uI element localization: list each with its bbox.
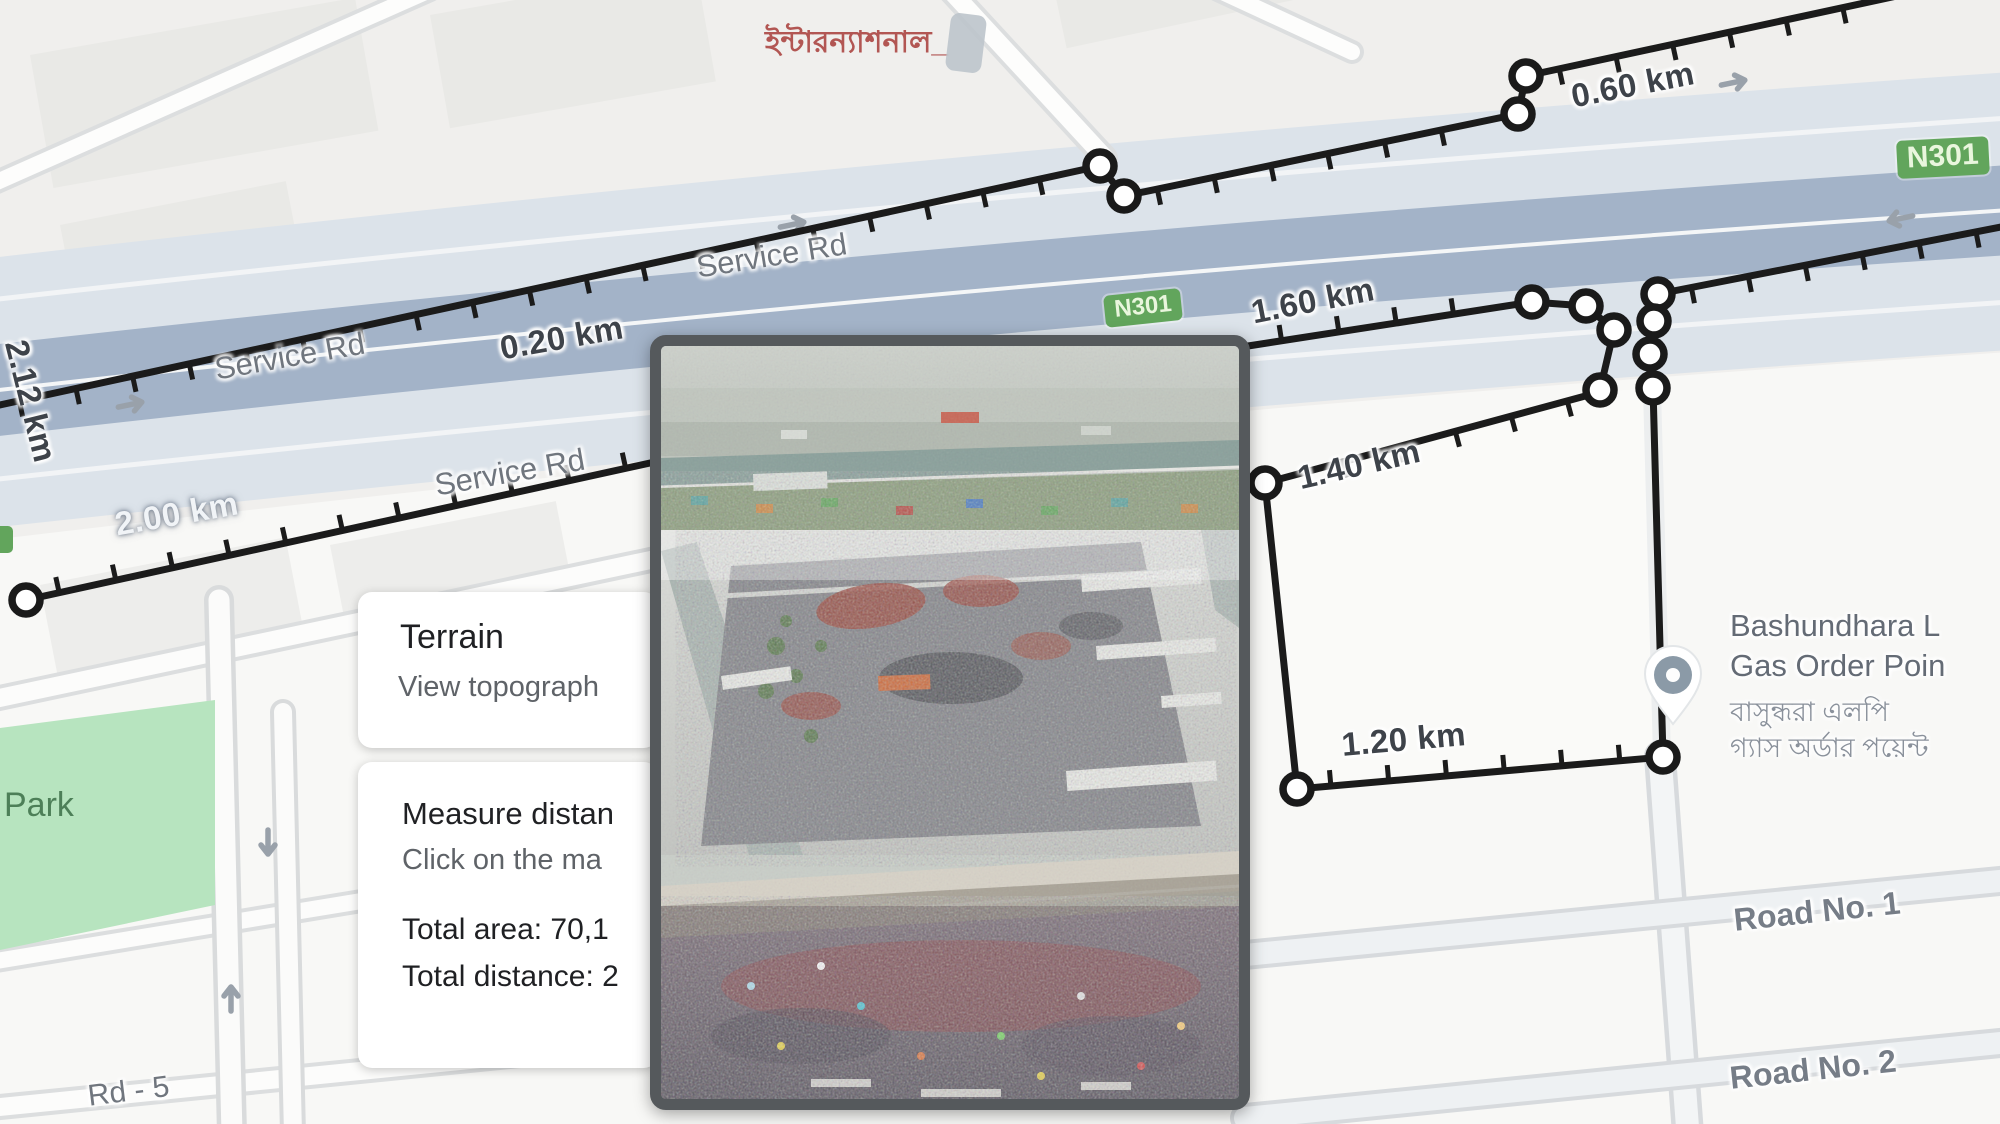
measure-tick (1384, 142, 1387, 158)
measure-tick (1271, 165, 1274, 181)
map-screen: ইন্টারন্যাশনাল_ Service Rd Service Rd Se… (0, 0, 2000, 1124)
poi-name-bn-line2: গ্যাস অর্ডার পয়েন্ট (1730, 730, 2000, 766)
measure-tick (1329, 770, 1330, 786)
measure-tick (1786, 20, 1789, 36)
poi-name-line2: Gas Order Poin (1730, 646, 2000, 686)
measure-tick (169, 552, 172, 568)
measure-tick (1748, 276, 1751, 292)
measure-tick (396, 502, 399, 518)
measure-card-total-distance: Total distance: 2 (402, 960, 658, 994)
measure-card-total-area: Total area: 70,1 (402, 913, 658, 947)
measure-node[interactable] (1649, 743, 1677, 771)
measure-tick (622, 453, 625, 469)
overlay-photo-crowd-collage (650, 335, 1250, 1110)
measure-tick (189, 364, 192, 380)
measure-tick (473, 302, 476, 318)
park-label: Park (4, 786, 74, 825)
terrain-subtitle: View topograph (398, 671, 658, 704)
measure-tick (1387, 765, 1388, 781)
building-blob (945, 12, 988, 74)
measure-tick (529, 290, 532, 306)
measure-node[interactable] (1639, 374, 1667, 402)
measure-node[interactable] (1586, 376, 1614, 404)
terrain-title: Terrain (400, 618, 658, 657)
photo-content (661, 346, 1239, 1099)
measure-card-title: Measure distan (402, 796, 658, 832)
measure-tick (226, 540, 229, 556)
measure-node[interactable] (1518, 288, 1546, 316)
poi-name-bn-line1: বাসুন্ধরা এলপি (1730, 694, 2000, 730)
measure-tick (112, 565, 115, 581)
measure-tick (1729, 32, 1732, 48)
measure-tick (926, 204, 929, 220)
measure-tick (1279, 325, 1281, 341)
measure-tick (1862, 254, 1865, 270)
measure-tick (1559, 69, 1562, 85)
measure-tick (1441, 130, 1444, 146)
measure-tick (1976, 232, 1979, 248)
measure-tick (1039, 179, 1042, 195)
map-label-international-bn: ইন্টারন্যাশনাল_ (765, 18, 948, 69)
measure-node[interactable] (1504, 100, 1532, 128)
measure-tick (1445, 760, 1446, 776)
measure-node[interactable] (12, 586, 40, 614)
measure-tick (1328, 154, 1331, 170)
measure-tick (1805, 265, 1808, 281)
measure-tick (416, 315, 419, 331)
measure-node[interactable] (1572, 292, 1600, 320)
measure-tick (983, 191, 986, 207)
measure-tick (1394, 307, 1396, 323)
measure-node[interactable] (1636, 340, 1664, 368)
measure-tick (1843, 8, 1846, 24)
measure-node[interactable] (1251, 469, 1279, 497)
measure-node[interactable] (1640, 307, 1668, 335)
poi-label-bashundhara: Bashundhara L Gas Order Poin বাসুন্ধরা এ… (1730, 606, 2000, 766)
measure-node[interactable] (1086, 152, 1114, 180)
measure-card-hint: Click on the ma (402, 844, 658, 877)
terrain-menu-card[interactable]: Terrain View topograph (358, 592, 658, 748)
measure-tick (56, 577, 59, 593)
measure-tick (869, 216, 872, 232)
route-badge-n301-right: N301 (1896, 136, 1990, 179)
measure-node[interactable] (1110, 182, 1138, 210)
poi-name-line1: Bashundhara L (1730, 606, 2000, 646)
measure-tick (339, 515, 342, 531)
measure-tick (1691, 287, 1694, 303)
measure-distance-card: Measure distan Click on the ma Total are… (358, 762, 658, 1068)
route-badge-clipped-left (0, 526, 13, 553)
measure-tick (643, 265, 646, 281)
measure-tick (1919, 243, 1922, 259)
measure-tick (1157, 189, 1160, 205)
measure-tick (1503, 755, 1504, 771)
measure-node[interactable] (1600, 316, 1628, 344)
measure-tick (282, 527, 285, 543)
measure-tick (1336, 316, 1338, 332)
measure-tick (133, 376, 136, 392)
measure-node[interactable] (1283, 775, 1311, 803)
measure-tick (1618, 745, 1619, 761)
measure-tick (1561, 750, 1562, 766)
measure-tick (586, 278, 589, 294)
measure-node[interactable] (1512, 62, 1540, 90)
measure-tick (1214, 177, 1217, 193)
measure-tick (1451, 298, 1453, 314)
measure-tick (76, 388, 79, 404)
